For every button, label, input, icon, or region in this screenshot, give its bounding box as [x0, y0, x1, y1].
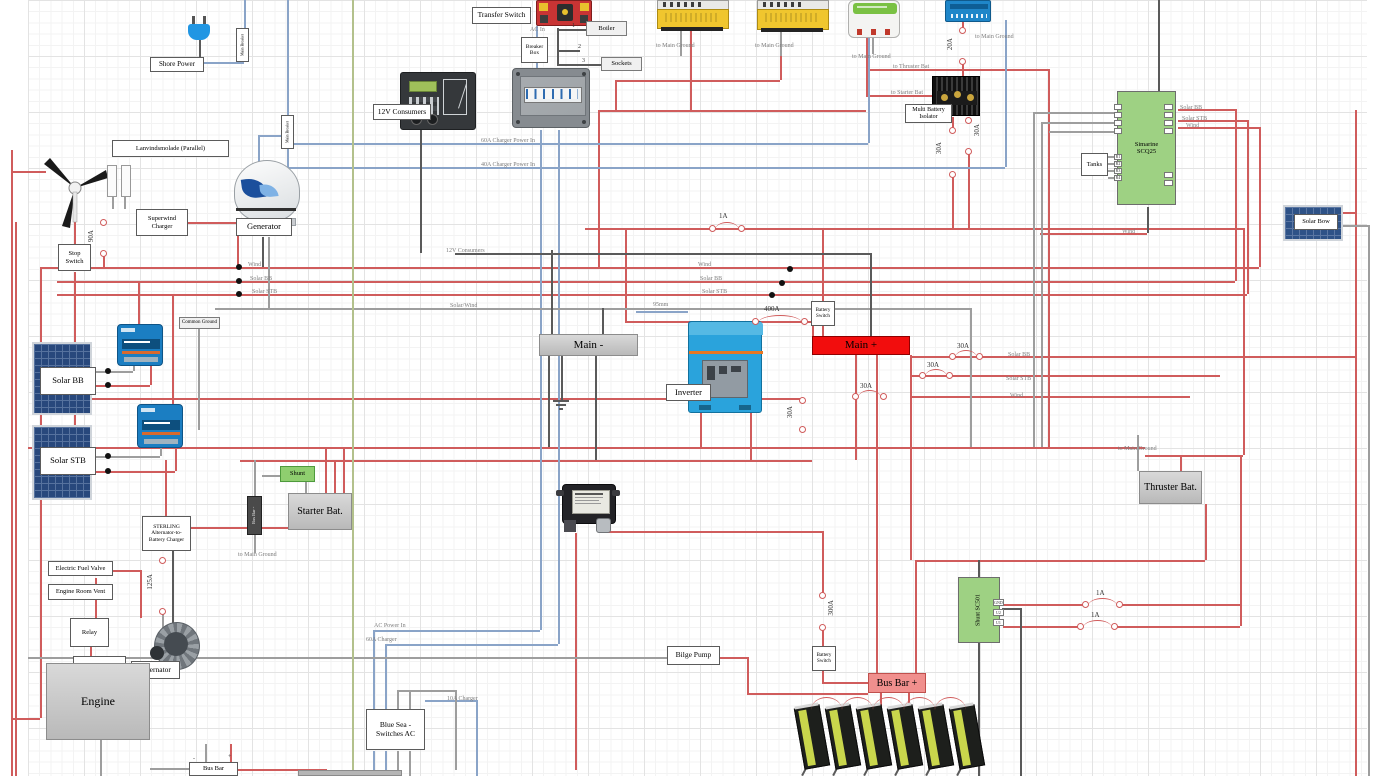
port[interactable] [1164, 180, 1173, 186]
wire-segment [598, 110, 600, 267]
wire-segment [1137, 435, 1139, 471]
wire-segment [57, 281, 1235, 283]
wire-segment [1180, 455, 1182, 471]
sterling-device[interactable] [848, 0, 900, 38]
port[interactable] [1164, 128, 1173, 134]
fuse-label: 1A [719, 213, 728, 220]
port[interactable] [1114, 112, 1122, 118]
wire-segment [28, 447, 1145, 449]
main-positive-bus[interactable]: Main + [812, 336, 910, 355]
junction-dot [787, 266, 793, 272]
wire-segment [160, 448, 162, 456]
wire-segment [558, 130, 560, 644]
wire-label: 60A Charger Power In [481, 138, 535, 144]
wire-segment [373, 630, 540, 632]
bilge-pump[interactable]: Bilge Pump [667, 646, 720, 665]
wire-segment [822, 682, 868, 684]
junction-dot [105, 382, 111, 388]
wire-segment [540, 130, 542, 630]
engine[interactable]: Engine [46, 663, 150, 740]
wire-segment [325, 447, 327, 493]
wire-segment [548, 356, 550, 447]
inverter-label[interactable]: Inverter [666, 384, 711, 401]
fuse-circle [738, 225, 745, 232]
wire-segment [334, 460, 336, 493]
wire-segment [476, 700, 478, 776]
wire-segment [112, 196, 114, 209]
port-R2[interactable]: R2 [1114, 161, 1122, 167]
port-U1[interactable]: U1 [993, 619, 1004, 626]
ac-breaker-panel[interactable] [512, 68, 590, 128]
wire-segment [1041, 122, 1117, 124]
battery-charger-b[interactable] [757, 0, 827, 32]
fuse-circle [880, 393, 887, 400]
fuse-label: 30A [936, 142, 943, 154]
wire-label: to Main Ground [975, 34, 1014, 40]
wire-label: to Main Ground [238, 552, 277, 558]
junction-dot [236, 264, 242, 270]
mppt-controller-2[interactable] [137, 404, 183, 448]
wire-segment [557, 50, 580, 52]
wire-segment [185, 222, 237, 224]
bottom-device-partial[interactable] [298, 770, 402, 776]
wind-turbine-icon[interactable] [30, 150, 110, 230]
wire-segment [598, 110, 866, 112]
wind-turbines-label[interactable]: Lanvindsmolade (Parallel) [112, 140, 229, 157]
twelve-v-panel[interactable] [400, 72, 476, 130]
fuse-label: 30A [787, 406, 794, 418]
wire-segment [750, 412, 752, 460]
fuse-circle [1116, 601, 1123, 608]
fuse-circle [959, 58, 966, 65]
wire-segment [40, 267, 1259, 269]
fuse-label: 300A [828, 600, 835, 616]
wire-segment [150, 365, 152, 385]
boiler[interactable]: Boiler [586, 21, 627, 36]
sockets[interactable]: Sockets [601, 57, 642, 71]
wire-segment [287, 0, 289, 115]
turbine-pole-1[interactable] [107, 165, 117, 197]
sterling-charger[interactable]: STERLING Alternator-to- Battery Charger [142, 516, 191, 551]
wire-segment [557, 29, 586, 31]
tanks[interactable]: Tanks [1081, 153, 1108, 176]
wire-segment [1355, 110, 1357, 776]
wire-label: Solar STB [252, 289, 277, 295]
port-R1[interactable]: R1 [1114, 154, 1122, 160]
engine-room-vent[interactable]: Engine Room Vent [48, 584, 113, 600]
fuse-circle [965, 148, 972, 155]
junction-dot [105, 468, 111, 474]
port-GND[interactable]: GND [993, 599, 1004, 606]
canvas-right-margin [1374, 0, 1380, 776]
wire-segment [262, 237, 264, 267]
wire-segment [1235, 109, 1237, 281]
wire-label: AC In [530, 27, 545, 33]
wire-label: to Starter Bat [891, 90, 923, 96]
wire-segment [1003, 626, 1080, 628]
battery-switch-bottom[interactable]: Battery Switch [812, 646, 836, 671]
wire-label: Solar STB [1182, 116, 1207, 122]
wire-segment [1115, 626, 1240, 628]
wire-segment [915, 560, 917, 673]
wire-segment [92, 385, 150, 387]
bus-bar-negative[interactable]: Bus Bar - [247, 496, 262, 535]
wire-segment [305, 482, 307, 493]
fuse-label: 30A [974, 124, 981, 136]
shunt[interactable]: Shunt [280, 466, 315, 482]
wire-segment [595, 356, 597, 460]
junction-dot [779, 280, 785, 286]
port[interactable] [1164, 112, 1173, 118]
wire-label: Solar BB [250, 276, 272, 282]
generator-dome[interactable] [234, 160, 298, 226]
fuse-circle [801, 318, 808, 325]
wire-label: to Main Ground [1118, 446, 1157, 452]
wire-segment [870, 253, 872, 336]
wire-segment [172, 294, 174, 405]
wire-segment [100, 740, 102, 776]
port[interactable] [1114, 104, 1122, 110]
wire-segment [1033, 112, 1117, 114]
fuse-circle [949, 171, 956, 178]
fuse-circle [799, 426, 806, 433]
wire-segment [822, 531, 824, 595]
fuse-label: 30A [957, 343, 969, 350]
port[interactable] [1114, 120, 1122, 126]
wire-segment [90, 647, 92, 656]
wire-label: Solar STB [702, 289, 727, 295]
wire-segment [822, 228, 824, 301]
wire-label: Solar BB [1180, 105, 1202, 111]
electric-fuel-valve[interactable]: Electric Fuel Valve [48, 561, 113, 576]
wire-segment [636, 311, 688, 313]
wire-segment [720, 657, 747, 659]
wire-segment [343, 447, 345, 493]
wire-label: Wind [1186, 123, 1199, 129]
wire-segment [1003, 604, 1085, 606]
wire-segment [822, 326, 824, 336]
shore-plug-icon[interactable] [188, 16, 212, 40]
ground-symbol [553, 400, 569, 402]
wire-segment [557, 64, 601, 66]
wire-segment [970, 308, 972, 447]
wire-segment [140, 570, 142, 618]
wire-segment [92, 456, 160, 458]
fuse-label: 30A [927, 362, 939, 369]
port[interactable] [1164, 104, 1173, 110]
fuse-circle [159, 608, 166, 615]
wire-segment [968, 152, 970, 228]
wire-label: Wind [248, 262, 261, 268]
solar-bb-label[interactable]: Solar BB [40, 367, 96, 395]
fuse-label: 20A [947, 38, 954, 50]
wire-segment [1247, 120, 1249, 294]
wire-segment [124, 196, 126, 209]
wire-segment [254, 460, 256, 496]
wire-segment [747, 657, 749, 693]
wire-segment [910, 355, 912, 560]
wire-segment [205, 744, 207, 762]
wire-label: Solar STB [1006, 376, 1031, 382]
port[interactable] [1164, 120, 1173, 126]
wire-segment [1243, 228, 1245, 455]
wire-segment [455, 690, 457, 770]
junction-dot [236, 291, 242, 297]
wire-segment [138, 281, 140, 325]
port[interactable] [1164, 172, 1173, 178]
wire-label: 2 [578, 44, 581, 50]
wire-label: + [228, 754, 231, 760]
wire-segment [15, 222, 17, 776]
fuse-circle [799, 397, 806, 404]
wire-segment [352, 0, 354, 776]
wire-segment [113, 570, 140, 572]
transfer-switch[interactable]: Transfer Switch [472, 7, 531, 24]
wire-segment [268, 237, 270, 308]
wire-segment [1205, 504, 1207, 560]
solar-stb-label[interactable]: Solar STB [40, 447, 96, 475]
wire-label: to Main Ground [755, 43, 794, 49]
wire-segment [409, 690, 411, 709]
multi-battery-isolator[interactable]: Multi Battery Isolator [905, 104, 952, 123]
wire-segment [747, 693, 868, 695]
blue-sea-switches-ac[interactable]: Blue Sea - Switches AC [366, 709, 425, 750]
wire-segment [1120, 604, 1240, 606]
wire-segment [215, 308, 970, 310]
wire-segment [608, 531, 822, 533]
wire-label: 1 [572, 23, 575, 29]
solar-bow-label[interactable]: Solar Bow [1294, 214, 1338, 230]
wire-segment [1048, 69, 1050, 447]
wire-label: Solar BB [700, 276, 722, 282]
fuse-circle [976, 353, 983, 360]
wire-segment [910, 375, 1220, 377]
wire-segment [1368, 225, 1370, 776]
fuse-circle [100, 219, 107, 226]
junction-dot [105, 368, 111, 374]
shore-power[interactable]: Shore Power [150, 57, 204, 72]
wire-segment [585, 228, 1243, 230]
common-ground[interactable]: Common Ground [179, 317, 220, 329]
wire-label: - [193, 756, 195, 762]
wire-label: 12V Consumers [446, 248, 485, 254]
bus-bar-positive[interactable]: Bus Bar + [868, 673, 926, 693]
port-R3[interactable]: R3 [1114, 168, 1122, 174]
breaker-box[interactable]: Breaker Box [521, 37, 548, 63]
wire-segment [910, 396, 1190, 398]
wire-label: to Thruster Bat [893, 64, 929, 70]
fuse-label: 1A [1091, 612, 1100, 619]
wire-segment [409, 751, 411, 776]
wire-segment [150, 768, 189, 770]
main-breaker-2[interactable]: Main Breaker [281, 115, 294, 149]
stop-switch[interactable]: Stop Switch [58, 244, 91, 271]
wire-segment [204, 62, 244, 64]
wire-label: to Main Ground [852, 54, 891, 60]
main-breaker-1[interactable]: Main Breaker [236, 28, 249, 62]
wire-segment [385, 644, 558, 646]
wire-segment [397, 690, 455, 692]
wire-segment [868, 37, 870, 143]
fuse-circle [959, 27, 966, 34]
wire-segment [262, 475, 280, 477]
port[interactable] [1114, 128, 1122, 134]
wire-segment [1020, 608, 1022, 776]
wire-segment [287, 167, 1005, 169]
wire-label: 3 [582, 58, 585, 64]
fuse-circle [819, 592, 826, 599]
wire-segment [1033, 112, 1035, 447]
wire-segment [191, 527, 288, 529]
superwind-charger[interactable]: Superwind Charger [136, 209, 188, 236]
fuse-circle [819, 624, 826, 631]
wire-segment [455, 253, 870, 255]
bus-bar-bottom[interactable]: Bus Bar [189, 762, 238, 776]
wire-segment [175, 448, 177, 471]
wire-segment [294, 143, 868, 145]
wire-segment [1240, 455, 1242, 626]
port-U2[interactable]: U2 [993, 609, 1004, 616]
wire-segment [1005, 20, 1007, 167]
wire-segment [397, 690, 399, 709]
wire-segment [602, 308, 604, 334]
fuse-circle [1111, 623, 1118, 630]
battery-switch-top[interactable]: Battery Switch [811, 301, 835, 326]
fuse-label: 400A [764, 306, 780, 313]
junction-dot [769, 292, 775, 298]
wire-segment [952, 175, 954, 228]
wire-segment [1147, 207, 1149, 233]
wire-segment [1049, 131, 1117, 133]
battery-charger-a[interactable] [657, 0, 727, 31]
port-R4[interactable]: R4 [1114, 175, 1122, 181]
thruster-bat[interactable]: Thruster Bat. [1139, 471, 1202, 504]
wire-segment [198, 329, 200, 430]
fuse-circle [100, 250, 107, 257]
fuse-circle [949, 127, 956, 134]
wire-segment [557, 28, 559, 64]
wire-label: Solar/Wind [450, 303, 477, 309]
junction-dot [105, 453, 111, 459]
fuse-label: 90A [88, 230, 95, 242]
wire-segment [876, 355, 878, 673]
diagram-canvas: Shore PowerLanvindsmolade (Parallel)Supe… [0, 0, 1380, 776]
wire-segment [615, 80, 780, 82]
wire-segment [690, 30, 692, 110]
wire-label: Wind [698, 262, 711, 268]
wire-segment [575, 533, 577, 770]
blue-charge-controller[interactable] [945, 0, 991, 22]
wire-segment [1002, 608, 1020, 610]
wire-segment [915, 560, 1205, 562]
battery-combiner-device[interactable] [556, 484, 620, 532]
wire-segment [700, 412, 702, 447]
wire-label: 60A Charger [366, 637, 397, 643]
relay[interactable]: Relay [70, 618, 109, 647]
mppt-controller-1[interactable] [117, 324, 163, 366]
wire-segment [1343, 225, 1368, 227]
wire-segment [254, 535, 256, 553]
wire-segment [551, 250, 553, 334]
wire-segment [1259, 127, 1261, 267]
wire-segment [822, 671, 824, 682]
fuse-label: 30A [860, 383, 872, 390]
transfer-switch-device[interactable] [536, 0, 592, 26]
wire-label: Wind [1010, 393, 1023, 399]
twelve-v-consumers[interactable]: 12V Consumers [373, 104, 431, 120]
fuse-label: 125A [147, 574, 154, 590]
wire-label: 95mm [653, 302, 668, 308]
fuse-circle [946, 372, 953, 379]
wire-segment [855, 355, 857, 460]
wire-segment [561, 356, 563, 400]
fuse-label: 1A [1096, 590, 1105, 597]
wire-segment [1158, 0, 1160, 91]
starter-bat[interactable]: Starter Bat. [288, 493, 352, 530]
wire-label: to Main Ground [656, 43, 695, 49]
wire-segment [165, 460, 167, 516]
fuse-circle [159, 557, 166, 564]
wire-label: 40A Charger Power In [481, 162, 535, 168]
wire-segment [1343, 212, 1355, 214]
wire-segment [615, 80, 617, 110]
wire-segment [199, 37, 201, 59]
turbine-pole-2[interactable] [121, 165, 131, 197]
wire-segment [11, 150, 13, 776]
wire-label: AC Power In [374, 623, 406, 629]
wire-label: 10A Charger [447, 696, 478, 702]
wire-label: Wind [1122, 229, 1135, 235]
wire-segment [92, 371, 133, 373]
generator[interactable]: Generator [236, 218, 292, 236]
wire-segment [1041, 122, 1043, 447]
wire-segment [872, 37, 874, 54]
canvas-left-margin [0, 0, 8, 776]
wire-segment [385, 644, 387, 709]
wire-segment [420, 130, 422, 253]
wire-label: Solar BB [1008, 352, 1030, 358]
junction-dot [236, 278, 242, 284]
wire-segment [1145, 455, 1243, 457]
main-negative-bus[interactable]: Main - [539, 334, 638, 356]
fuse-circle [965, 117, 972, 124]
